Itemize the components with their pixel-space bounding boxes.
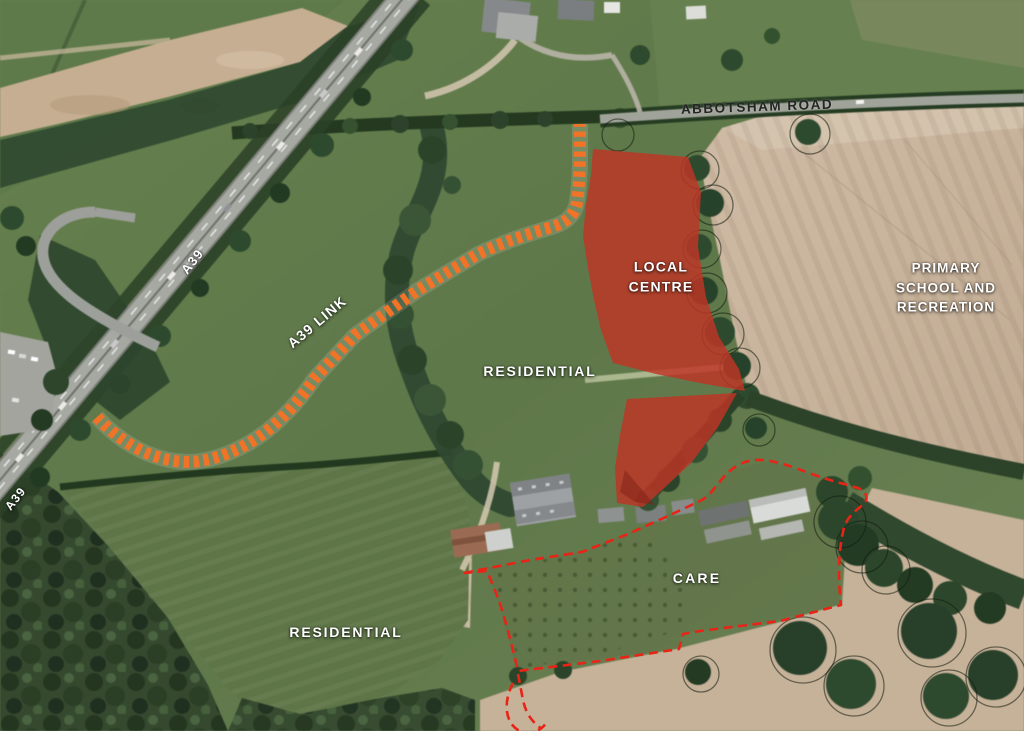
label-care: CARE: [673, 568, 721, 588]
label-local-centre: LOCAL CENTRE: [619, 257, 703, 298]
masterplan-aerial-map: ABBOTSHAM ROAD A39 A39 A39 LINK LOCAL CE…: [0, 0, 1024, 731]
label-primary-school: PRIMARY SCHOOL AND RECREATION: [889, 259, 1003, 318]
label-residential-north: RESIDENTIAL: [483, 361, 596, 381]
label-residential-south: RESIDENTIAL: [289, 622, 402, 642]
